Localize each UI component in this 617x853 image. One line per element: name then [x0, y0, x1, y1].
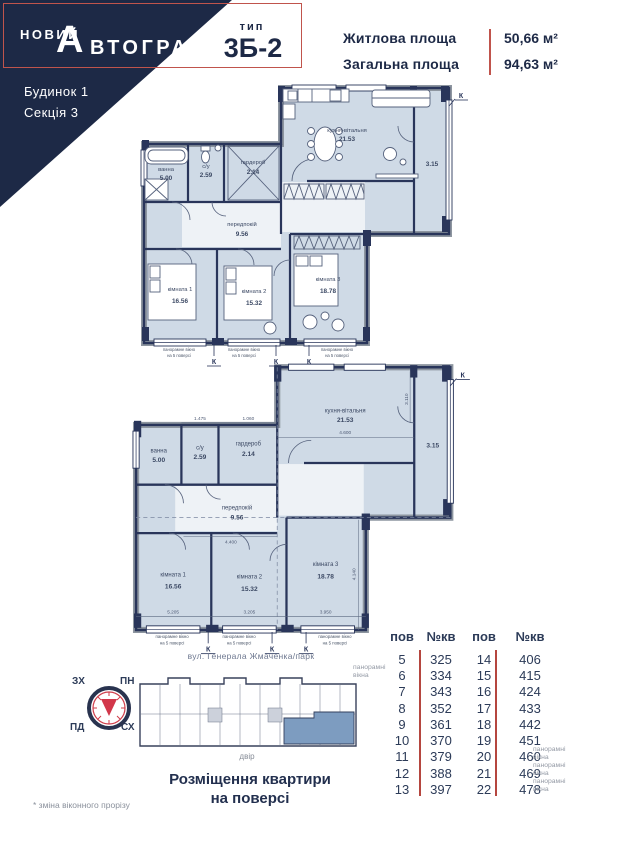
- window-note: панорамне вікно: [318, 634, 352, 639]
- apartments-table: 532514406 633415415 734316424 835217433 …: [386, 651, 556, 798]
- window-note: на 5 поверсі: [232, 353, 256, 358]
- dim-label: 1.060: [242, 416, 254, 422]
- room-label-room3: кімната 3: [316, 277, 341, 283]
- compass-south: ПД: [70, 722, 84, 733]
- panoramic-note-20: панорамні вікна: [533, 746, 573, 762]
- room-label-room1: кімната 1: [168, 287, 193, 293]
- k-mark: К: [459, 93, 464, 100]
- dim-label: 3.205: [243, 609, 255, 615]
- window-note: на 5 поверсі: [323, 640, 348, 645]
- brand-letter-a: А: [56, 20, 83, 60]
- placement-caption: Розміщення квартири на поверсі: [160, 770, 340, 808]
- col-header-apt-2: №кв: [504, 629, 556, 644]
- window-note: на 5 поверсі: [227, 640, 252, 645]
- room-area-room2: 15.32: [246, 300, 262, 307]
- room-area-room3: 18.78: [317, 573, 334, 580]
- room-label-room1: кімната 1: [160, 572, 186, 578]
- panoramic-note-line: вікна: [533, 770, 573, 778]
- col-header-apt-1: №кв: [418, 629, 464, 644]
- room-label-wardrobe: гардероб: [236, 442, 262, 448]
- apartments-table-header: пов №кв пов №кв: [386, 629, 556, 644]
- room-area-room1: 16.56: [165, 584, 182, 591]
- room-area-wardrobe: 2.14: [242, 451, 255, 458]
- room-area-wc: 2.59: [194, 454, 207, 461]
- dim-label: 5.205: [167, 609, 179, 615]
- panoramic-note-line: вікна: [533, 786, 573, 794]
- room-area-room1: 16.56: [172, 298, 188, 305]
- compass-west: ЗХ: [72, 676, 85, 687]
- panoramic-note-line: панорамні: [533, 762, 573, 770]
- room-label-wc: с/у: [202, 164, 210, 170]
- panoramic-note-22: панорамні вікна: [533, 778, 573, 794]
- table-cell: 10: [386, 733, 418, 748]
- dim-label: 4.400: [225, 539, 237, 545]
- window-note: панорамне вікно: [156, 634, 190, 639]
- col-header-floor-1: пов: [386, 629, 418, 644]
- table-cell: 7: [386, 684, 418, 699]
- room-area-wardrobe: 2.14: [247, 169, 260, 176]
- table-cell: 15: [464, 668, 504, 683]
- total-area-label: Загальна площа: [343, 56, 459, 72]
- room-label-bath: ванна: [151, 449, 168, 455]
- room-label-hall: передпокій: [227, 221, 257, 228]
- building-overview: [138, 668, 358, 760]
- apartment-type-label: тип: [232, 21, 272, 33]
- room-label-room2: кімната 2: [237, 574, 263, 580]
- room-area-kitchen: 21.53: [339, 136, 355, 143]
- col-header-floor-2: пов: [464, 629, 504, 644]
- table-cell: 397: [418, 782, 464, 797]
- room-label-bath: ванна: [158, 167, 175, 173]
- room-label-kitchen: кухня-вітальня: [327, 128, 367, 134]
- room-label-hall: передпокій: [222, 504, 252, 511]
- table-cell: 14: [464, 652, 504, 667]
- table-cell: 343: [418, 684, 464, 699]
- panoramic-note-line: панорамні: [533, 746, 573, 754]
- placement-caption-line1: Розміщення квартири: [160, 770, 340, 789]
- room-label-room2: кімната 2: [242, 289, 267, 295]
- building-number: Будинок 1: [24, 84, 89, 99]
- yard-label: двір: [232, 752, 262, 761]
- table-cell: 424: [504, 684, 556, 699]
- dim-label: 4.600: [339, 430, 351, 436]
- window-note: на 5 поверсі: [167, 353, 191, 358]
- section-number: Секція 3: [24, 105, 79, 120]
- plan-walls: [134, 365, 451, 632]
- apartment-type-value: 3Б-2: [213, 33, 293, 64]
- room-area-bath: 5.00: [152, 457, 165, 464]
- window-note: на 5 поверсі: [160, 640, 185, 645]
- table-cell: 18: [464, 717, 504, 732]
- room-label-kitchen: кухня-вітальня: [325, 409, 366, 415]
- table-cell: 13: [386, 782, 418, 797]
- floor-plan-dimensioned: 1.475 1.060 4.600 3.110 4.400 5.205 3.20…: [134, 363, 474, 662]
- table-cell: 352: [418, 701, 464, 716]
- table-cell: 17: [464, 701, 504, 716]
- table-cell: 5: [386, 652, 418, 667]
- brand-word-vtograf: ВТОГРАФ: [90, 37, 209, 60]
- room-area-wc: 2.59: [200, 172, 213, 179]
- table-cell: 442: [504, 717, 556, 732]
- table-cell: 388: [418, 766, 464, 781]
- room-area-kitchen: 21.53: [337, 417, 354, 424]
- room-area-room3: 18.78: [320, 288, 336, 295]
- total-area-value: 94,63 м²: [504, 56, 558, 72]
- table-cell: 22: [464, 782, 504, 797]
- table-cell: 19: [464, 733, 504, 748]
- area-divider-line: [489, 29, 491, 75]
- room-area-hall: 9.56: [236, 231, 249, 238]
- table-cell: 361: [418, 717, 464, 732]
- window-change-footnote: * зміна віконного прорізу: [33, 800, 130, 810]
- table-cell: 12: [386, 766, 418, 781]
- living-area-label: Житлова площа: [343, 30, 456, 46]
- table-cell: 20: [464, 749, 504, 764]
- window-note: панорамне вікно: [223, 634, 257, 639]
- panoramic-note-21: панорамні вікна: [533, 762, 573, 778]
- panoramic-note-line: панорамні: [533, 778, 573, 786]
- floor-plan-furnished: кухня-вітальня 21.53 3.15 ванна 5.00 с/у…: [142, 84, 472, 374]
- table-cell: 21: [464, 766, 504, 781]
- panoramic-note-line: вікна: [533, 754, 573, 762]
- k-mark: К: [460, 371, 465, 380]
- room-label-wardrobe: гардероб: [241, 160, 266, 166]
- room-area-hall: 9.56: [231, 515, 244, 522]
- window-note: панорамне вікно: [321, 347, 354, 352]
- room-area-balcony: 3.15: [426, 443, 439, 450]
- table-cell: 433: [504, 701, 556, 716]
- table-cell: 8: [386, 701, 418, 716]
- dim-label: 3.110: [404, 393, 410, 405]
- table-cell: 406: [504, 652, 556, 667]
- placement-caption-line2: на поверсі: [160, 789, 340, 808]
- compass-icon: [85, 684, 133, 732]
- dim-label: 3.950: [320, 609, 332, 615]
- flyer-page: НОВИЙ А ВТОГРАФ тип 3Б-2 Житлова площа З…: [0, 0, 617, 853]
- window-note: на 5 поверсі: [325, 353, 349, 358]
- window-note: панорамне вікно: [163, 347, 196, 352]
- room-area-bath: 5.00: [160, 175, 173, 182]
- room-area-balcony: 3.15: [426, 161, 439, 168]
- window-note: панорамне вікно: [228, 347, 261, 352]
- room-area-room2: 15.32: [241, 586, 258, 593]
- table-cell: 16: [464, 684, 504, 699]
- table-cell: 370: [418, 733, 464, 748]
- living-area-value: 50,66 м²: [504, 30, 558, 46]
- dim-label: 1.475: [194, 416, 206, 422]
- dim-label: 4.140: [352, 568, 358, 580]
- table-cell: 11: [386, 749, 418, 764]
- table-cell: 9: [386, 717, 418, 732]
- table-cell: 415: [504, 668, 556, 683]
- room-label-room3: кімната 3: [313, 562, 339, 568]
- table-cell: 379: [418, 749, 464, 764]
- street-label: вул. Генерала Жмаченка/парк: [186, 651, 316, 661]
- panoramic-note-left: панорамні вікна: [353, 664, 387, 680]
- panoramic-note-line: панорамні: [353, 664, 387, 672]
- room-label-wc: с/у: [196, 446, 204, 452]
- panoramic-note-line: вікна: [353, 672, 387, 680]
- table-cell: 6: [386, 668, 418, 683]
- table-cell: 325: [418, 652, 464, 667]
- table-cell: 334: [418, 668, 464, 683]
